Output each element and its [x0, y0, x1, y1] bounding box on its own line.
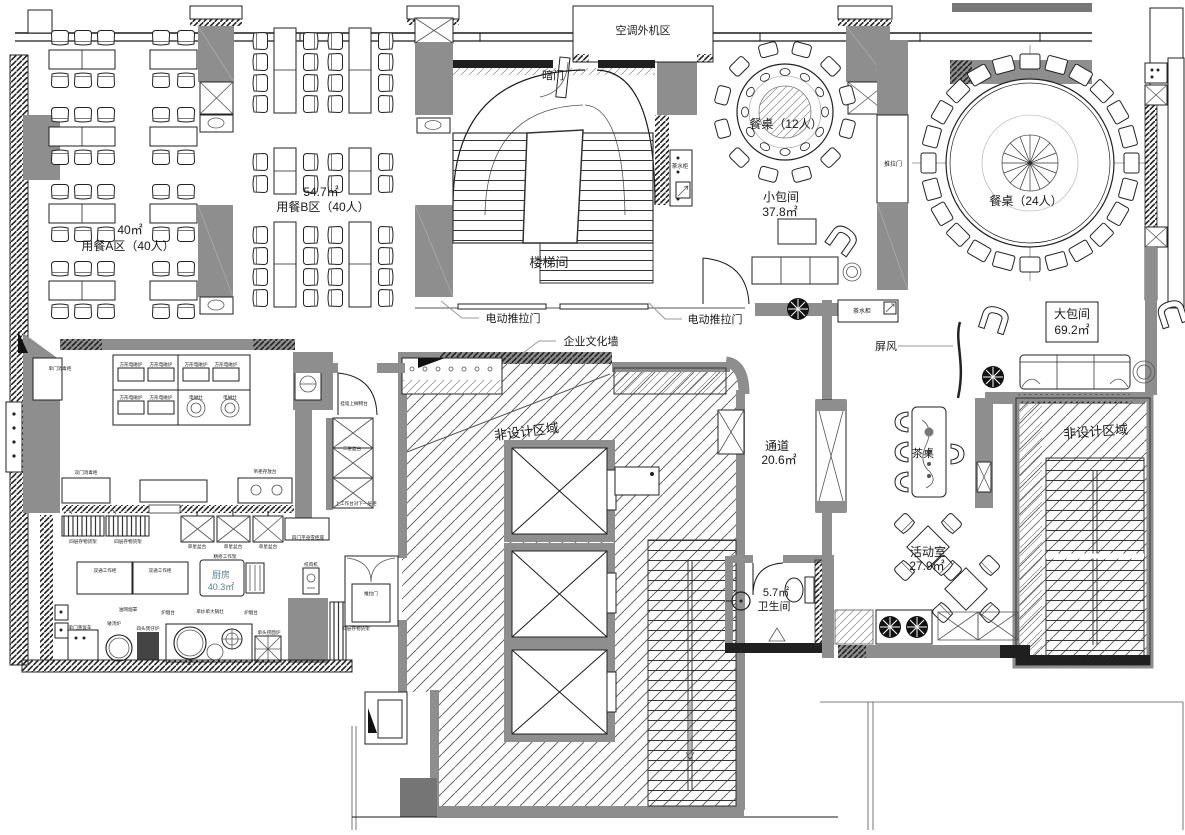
big-private-room: 餐桌（24人） 大包间 69.2㎡ 屏风 [875, 45, 1185, 404]
label-square-induction: 方形电磁炉 [215, 361, 238, 368]
label-four-head-stove: 四头煲仔炉 [137, 625, 160, 632]
work-tables: 双通工作柜 双通工作柜 厨房 40.3㎡ 精修工作架 绞肉机 [77, 553, 319, 596]
label-table-24: 餐桌（24人） [989, 193, 1062, 208]
pier-1 [190, 6, 242, 314]
label-hood-table: 炉烟台 [161, 609, 175, 616]
corridor: 通道 20.6㎡ [761, 300, 846, 560]
big-room-lounge: 大包间 69.2㎡ 屏风 [875, 298, 1185, 404]
label-ac-area: 空调外机区 [616, 23, 671, 37]
label-square-induction: 方形电磁炉 [150, 394, 173, 401]
round-table-12 [714, 41, 856, 183]
east-wall-fixtures [1145, 63, 1167, 395]
label-tea-table: 茶桌 [912, 447, 934, 460]
label-screen: 屏风 [875, 340, 897, 353]
label-soup-stove: 矮汤炉 [107, 620, 121, 627]
cook-island: 方形电磁炉 方形电磁炉 方形电磁炉 方形电磁炉 方形电磁炉 方形电磁炉 电磁灶 … [113, 355, 250, 425]
label-square-induction: 方形电磁炉 [185, 361, 208, 368]
label-single-star-sink: 单星盆台 [224, 543, 243, 550]
core-center: 非设计区域 [352, 352, 838, 817]
label-induction-stove: 电磁灶 [189, 394, 203, 401]
label-wall-shelf: 挂墙上搁物台 [340, 400, 368, 407]
label-four-door-fridge: 四门平身雪柜座 [292, 534, 325, 541]
label-dining-b: 用餐B区（40人） [276, 199, 369, 214]
label-hanging-cabinet: 吊柜存放台 [254, 468, 277, 475]
label-rice-steamer: 单门蒸饭车 [69, 624, 92, 631]
label-sliding-door: 推拉门 [884, 160, 902, 168]
label-wok-stove: 单炒单大锅灶 [196, 608, 224, 615]
label-single-sterilizer: 单门消毒柜 [49, 365, 72, 372]
label-hood-table: 炉烟台 [244, 609, 258, 616]
tea-area: 茶桌 [895, 398, 993, 508]
label-toilet: 卫生间 [758, 599, 791, 613]
label-corridor: 通道 [765, 439, 789, 453]
label-square-induction: 方形电磁炉 [120, 361, 143, 368]
label-dining-b-area: 54.7㎡ [303, 185, 338, 199]
label-three-star-sink: 三星盆台 [343, 445, 362, 452]
pantry-rooms: 推拉门 [345, 556, 407, 744]
label-trim-rack: 精修工作架 [214, 553, 237, 560]
pier-small-room-east: 推拉门 [877, 40, 908, 290]
sink-row: 四层存物货架 四层存物货架 单星盆台 单星盆台 单星盆台 四门平身雪柜座 [62, 509, 329, 550]
core-right: 非设计区域 [1016, 398, 1150, 665]
sink-column: 挂墙上搁物台 三星盆台 上工作台对下一层柜 [326, 400, 377, 510]
label-culture-wall: 企业文化墙 [564, 334, 619, 348]
label-noodle-stove: 单头捞面炉 [258, 629, 281, 636]
pier-2 [407, 6, 459, 297]
label-storage-rack: 四层存物货架 [114, 538, 142, 545]
label-activity: 活动室 [910, 544, 946, 559]
label-small-room-area: 37.8㎡ [762, 205, 797, 219]
activity-room: 活动室 27.9㎡ [822, 512, 1030, 658]
label-work-cabinet: 双通工作柜 [149, 567, 172, 574]
label-small-room: 小包间 [763, 190, 799, 204]
label-stairwell: 楼梯间 [529, 255, 568, 270]
label-square-induction: 方形电磁炉 [150, 361, 173, 368]
mid-counters: 双门消毒柜 吊柜存放台 [62, 468, 294, 513]
label-big-room-area: 69.2㎡ [1054, 323, 1089, 337]
label-meat-grinder: 绞肉机 [304, 561, 318, 568]
label-storage-rack: 四层存物货架 [69, 538, 97, 545]
round-table-24 [912, 45, 1148, 281]
label-table-12: 餐桌（12人） [749, 116, 822, 131]
label-pantry-door: 推拉门 [364, 590, 378, 597]
label-tea-cabinet-1: 茶水柜 [672, 162, 689, 170]
elevator-shafts [504, 440, 616, 742]
floor-plan: 推拉门 空调外机区 暗门 楼梯间 茶水柜 40㎡ 用餐A区（40人） 54.7㎡… [0, 0, 1185, 830]
label-dining-a-area: 40㎡ [117, 223, 142, 237]
label-single-star-sink: 单星盆台 [188, 543, 207, 550]
label-work-cabinet: 双通工作柜 [94, 567, 117, 574]
label-tea-cabinet-2: 茶水柜 [853, 307, 871, 315]
label-activity-area: 27.9㎡ [909, 559, 944, 573]
label-electric-door-2: 电动推拉门 [688, 312, 743, 326]
label-double-sterilizer: 双门消毒柜 [75, 469, 98, 476]
label-electric-door-1: 电动推拉门 [486, 311, 541, 325]
label-grease-hood: 油网烟罩 [119, 606, 138, 613]
label-corridor-area: 20.6㎡ [761, 453, 796, 467]
label-square-induction: 方形电磁炉 [120, 394, 143, 401]
label-toilet-area: 5.7㎡ [763, 586, 789, 599]
label-big-room: 大包间 [1054, 307, 1090, 321]
kitchen: 方形电磁炉 方形电磁炉 方形电磁炉 方形电磁炉 方形电磁炉 方形电磁炉 电磁灶 … [22, 339, 407, 744]
label-kitchen-area: 40.3㎡ [208, 582, 235, 592]
cook-line: 单门蒸饭车 矮汤炉 四头煲仔炉 油网烟罩 炉烟台 单炒单大锅灶 炉烟台 单头捞面… [68, 598, 370, 665]
ac-unit-recess: 空调外机区 [573, 6, 713, 62]
label-dining-a: 用餐A区（40人） [81, 238, 174, 253]
label-hidden-door: 暗门 [542, 68, 564, 82]
label-induction-stove: 电磁灶 [223, 394, 237, 401]
label-worktable: 上工作台对下一层柜 [335, 500, 377, 507]
label-kitchen: 厨房 [212, 569, 230, 580]
label-single-star-sink: 单星盆台 [259, 543, 278, 550]
